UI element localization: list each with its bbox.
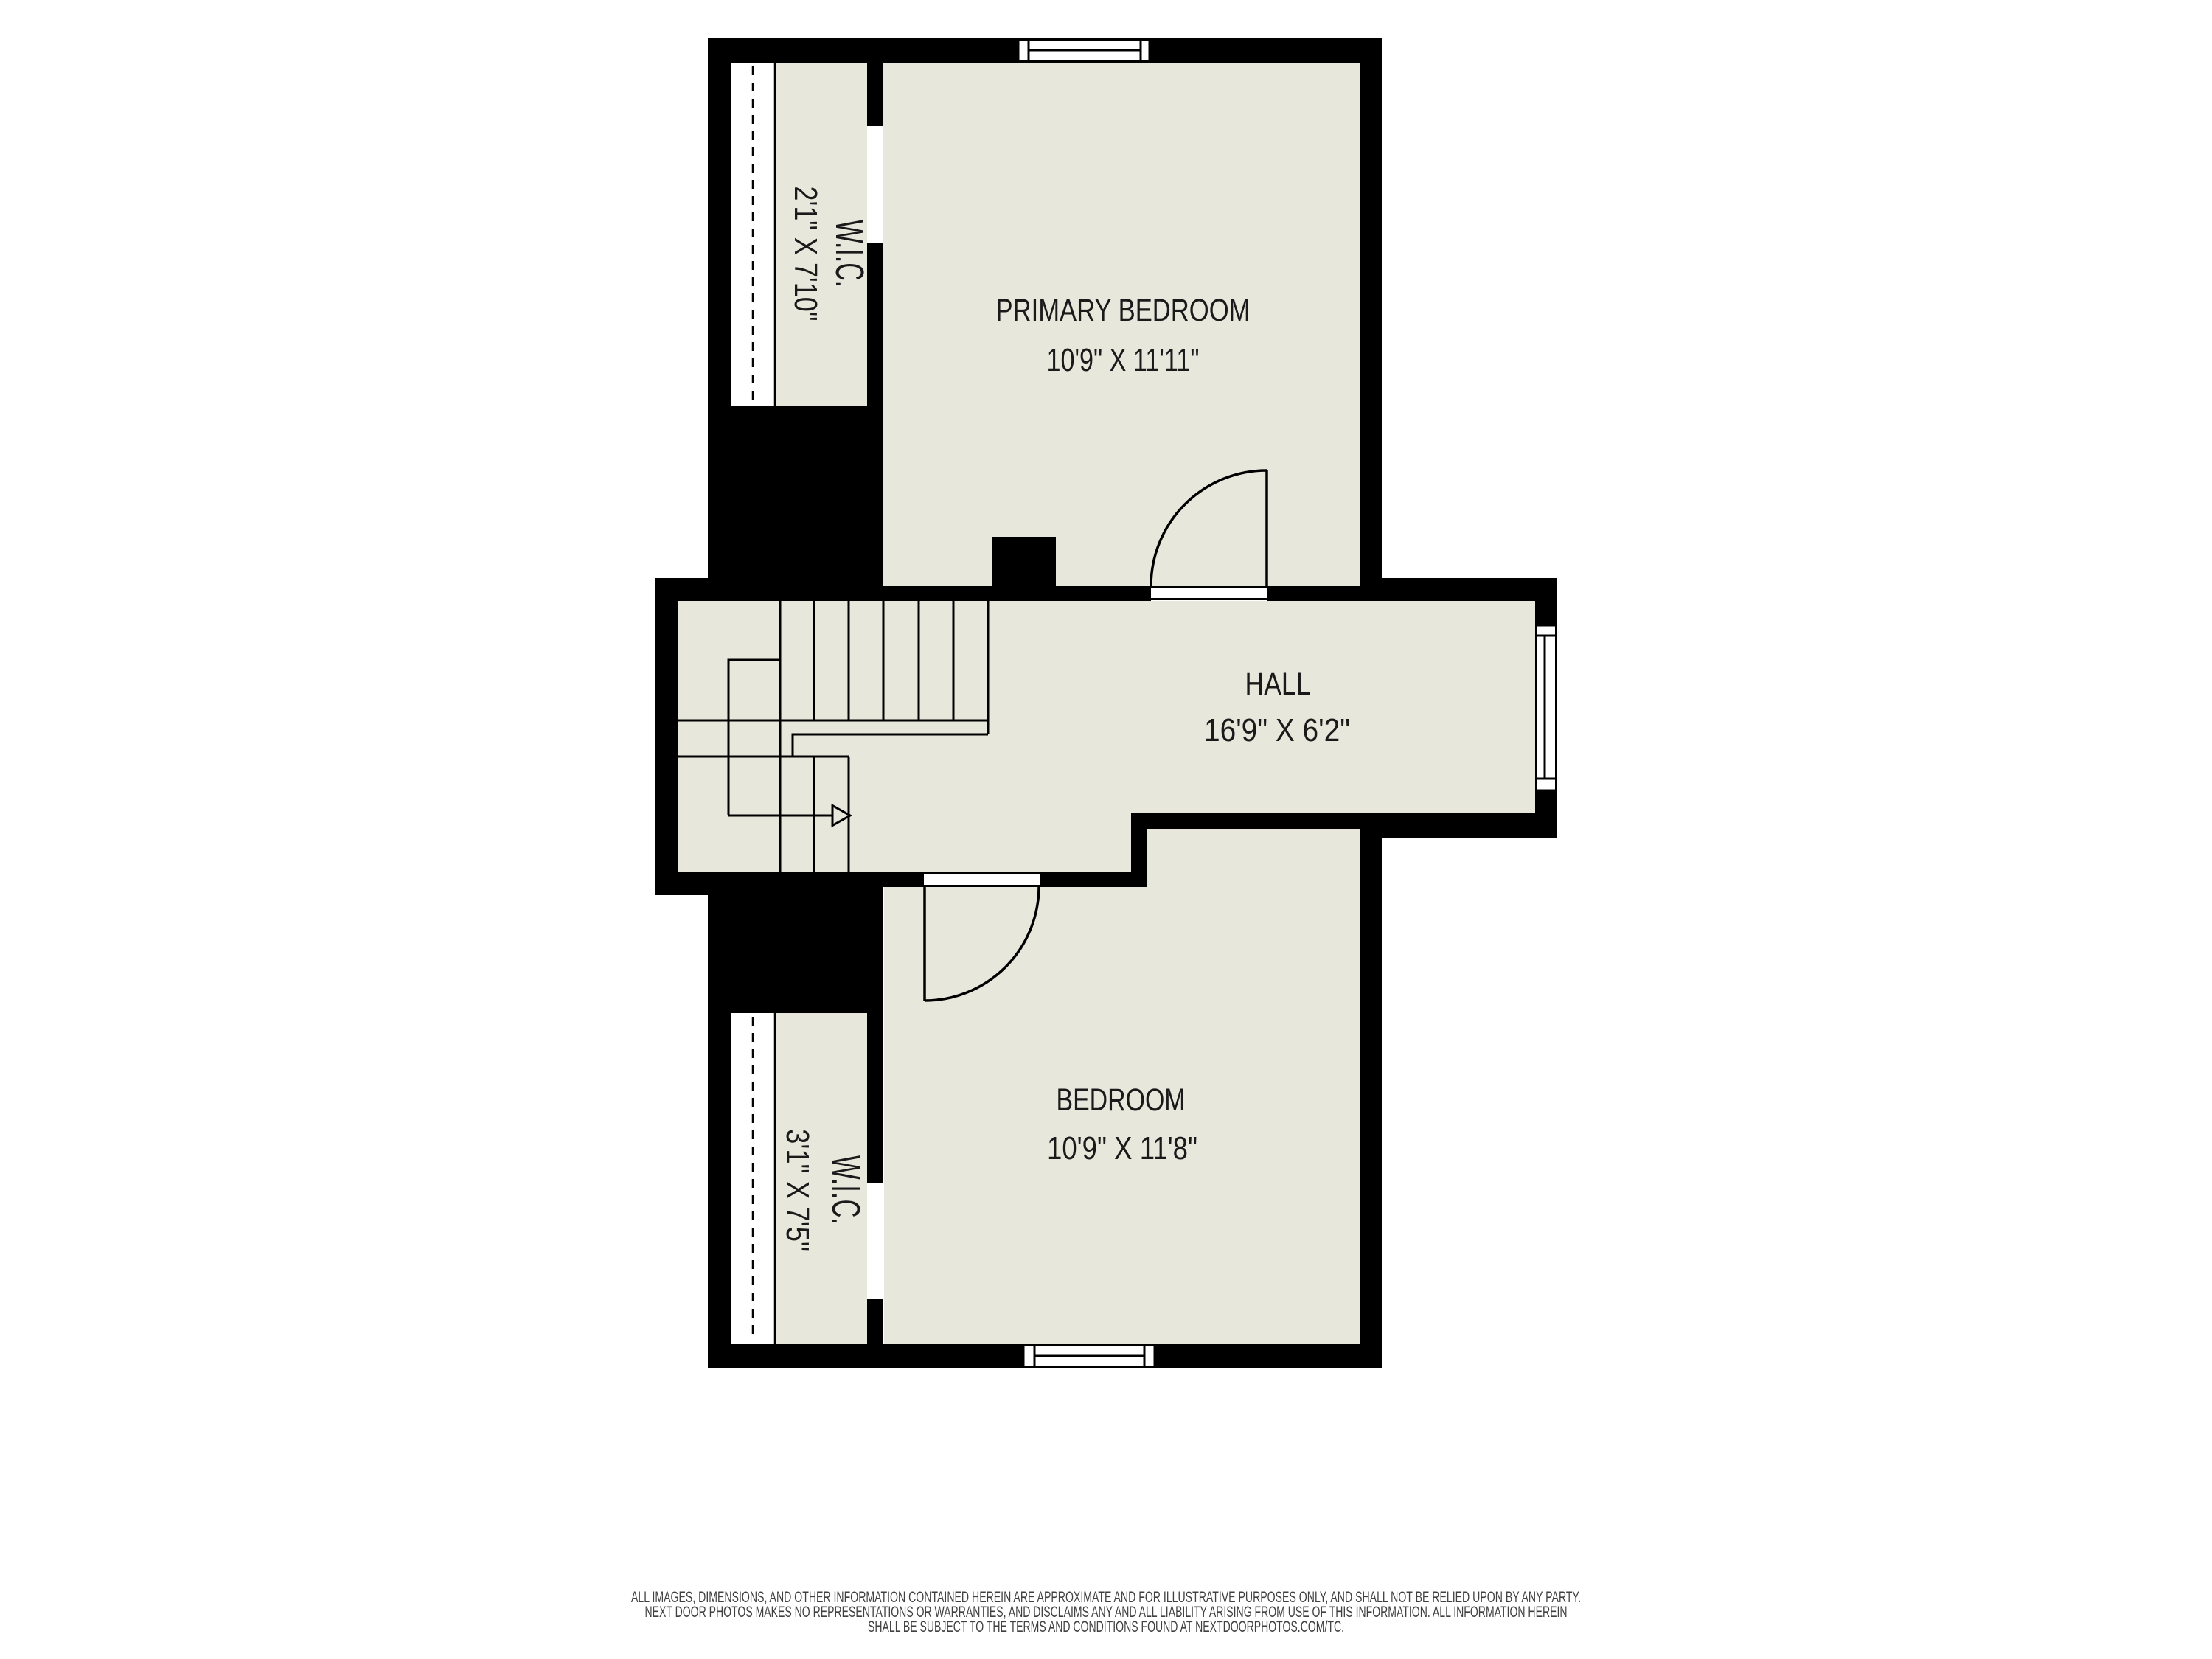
svg-text:3'1" X 7'5": 3'1" X 7'5" [779,1129,815,1251]
svg-text:HALL: HALL [1245,667,1311,702]
svg-text:10'9" X 11'8": 10'9" X 11'8" [1047,1130,1197,1166]
svg-text:10'9" X 11'11": 10'9" X 11'11" [1047,342,1200,378]
svg-text:W.I.C.: W.I.C. [824,1155,868,1225]
svg-text:16'9" X 6'2": 16'9" X 6'2" [1204,712,1350,748]
svg-text:BEDROOM: BEDROOM [1057,1082,1186,1118]
svg-text:PRIMARY BEDROOM: PRIMARY BEDROOM [996,293,1251,328]
svg-text:2'1" X 7'10": 2'1" X 7'10" [787,187,824,321]
svg-text:SHALL BE SUBJECT TO THE TERMS: SHALL BE SUBJECT TO THE TERMS AND CONDIT… [868,1618,1344,1635]
svg-text:W.I.C.: W.I.C. [827,220,872,288]
